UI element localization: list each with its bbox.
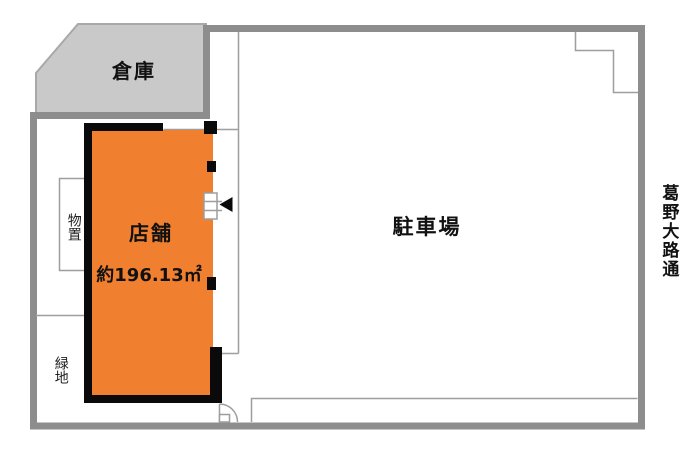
street-name-label: 葛野大路通 (657, 176, 679, 286)
site-plan: 倉庫 店舗 約196.13㎡ 駐車場 物置 緑地 葛野大路通 (0, 0, 700, 452)
store-label: 店舗 (101, 222, 201, 244)
storage-shed-label: 物置 (64, 207, 82, 247)
door-swing-icon (220, 404, 238, 422)
curb-strip-line (252, 399, 638, 423)
warehouse-label: 倉庫 (84, 59, 184, 83)
store-corner-post (204, 121, 217, 134)
store-floor (92, 130, 213, 396)
store-wall-left (84, 123, 92, 403)
store-area-label: 約196.13㎡ (69, 266, 229, 286)
store-pillar-upper (207, 161, 216, 172)
green-area-label: 緑地 (51, 350, 69, 390)
parking-label: 駐車場 (357, 216, 497, 239)
store-wall-right-step (210, 347, 222, 403)
corner-notch-line (576, 32, 639, 93)
store-wall-bottom (84, 395, 222, 403)
entrance-window-icon (204, 193, 222, 219)
store-wall-top (84, 123, 163, 131)
